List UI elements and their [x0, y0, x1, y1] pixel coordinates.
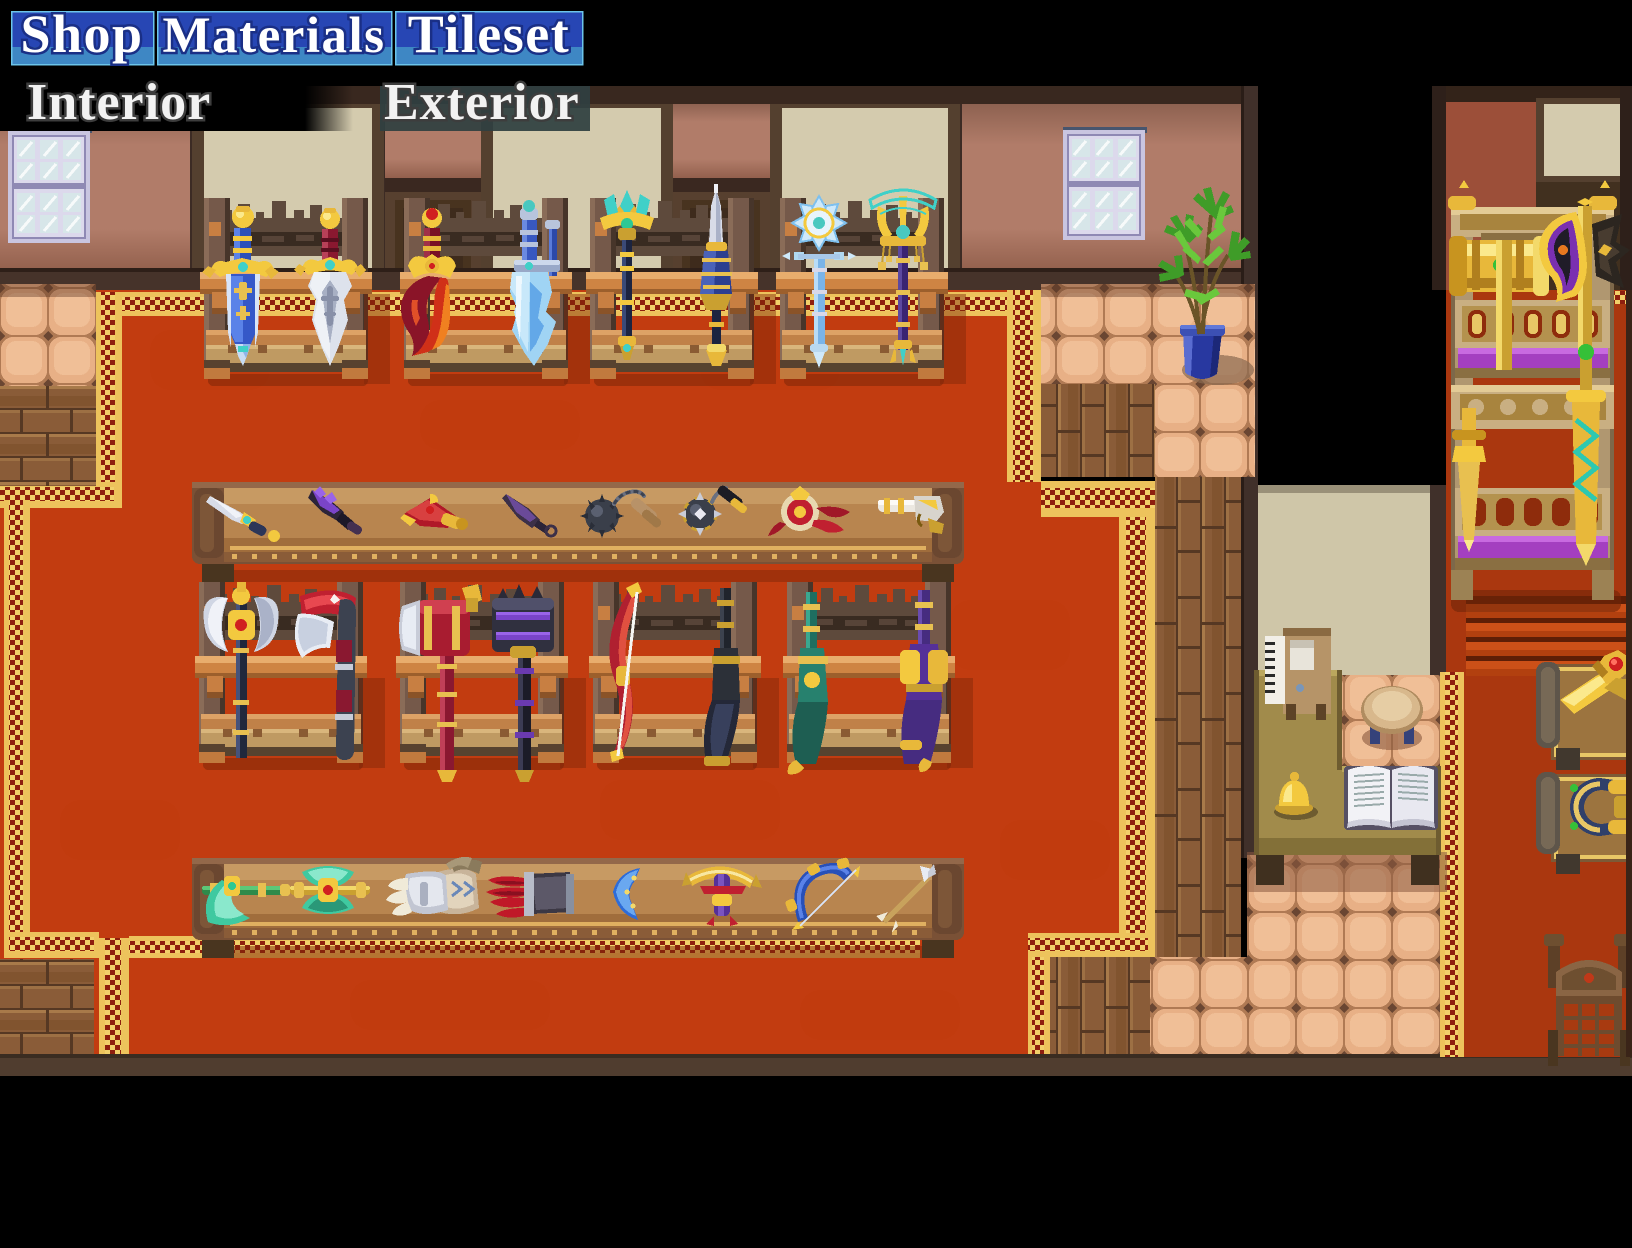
- svg-text:Materials: Materials: [162, 8, 385, 64]
- svg-text:Interior: Interior: [27, 74, 211, 131]
- svg-text:Exterior: Exterior: [384, 74, 580, 131]
- svg-text:Tileset: Tileset: [408, 4, 570, 64]
- svg-text:Shop: Shop: [20, 4, 143, 64]
